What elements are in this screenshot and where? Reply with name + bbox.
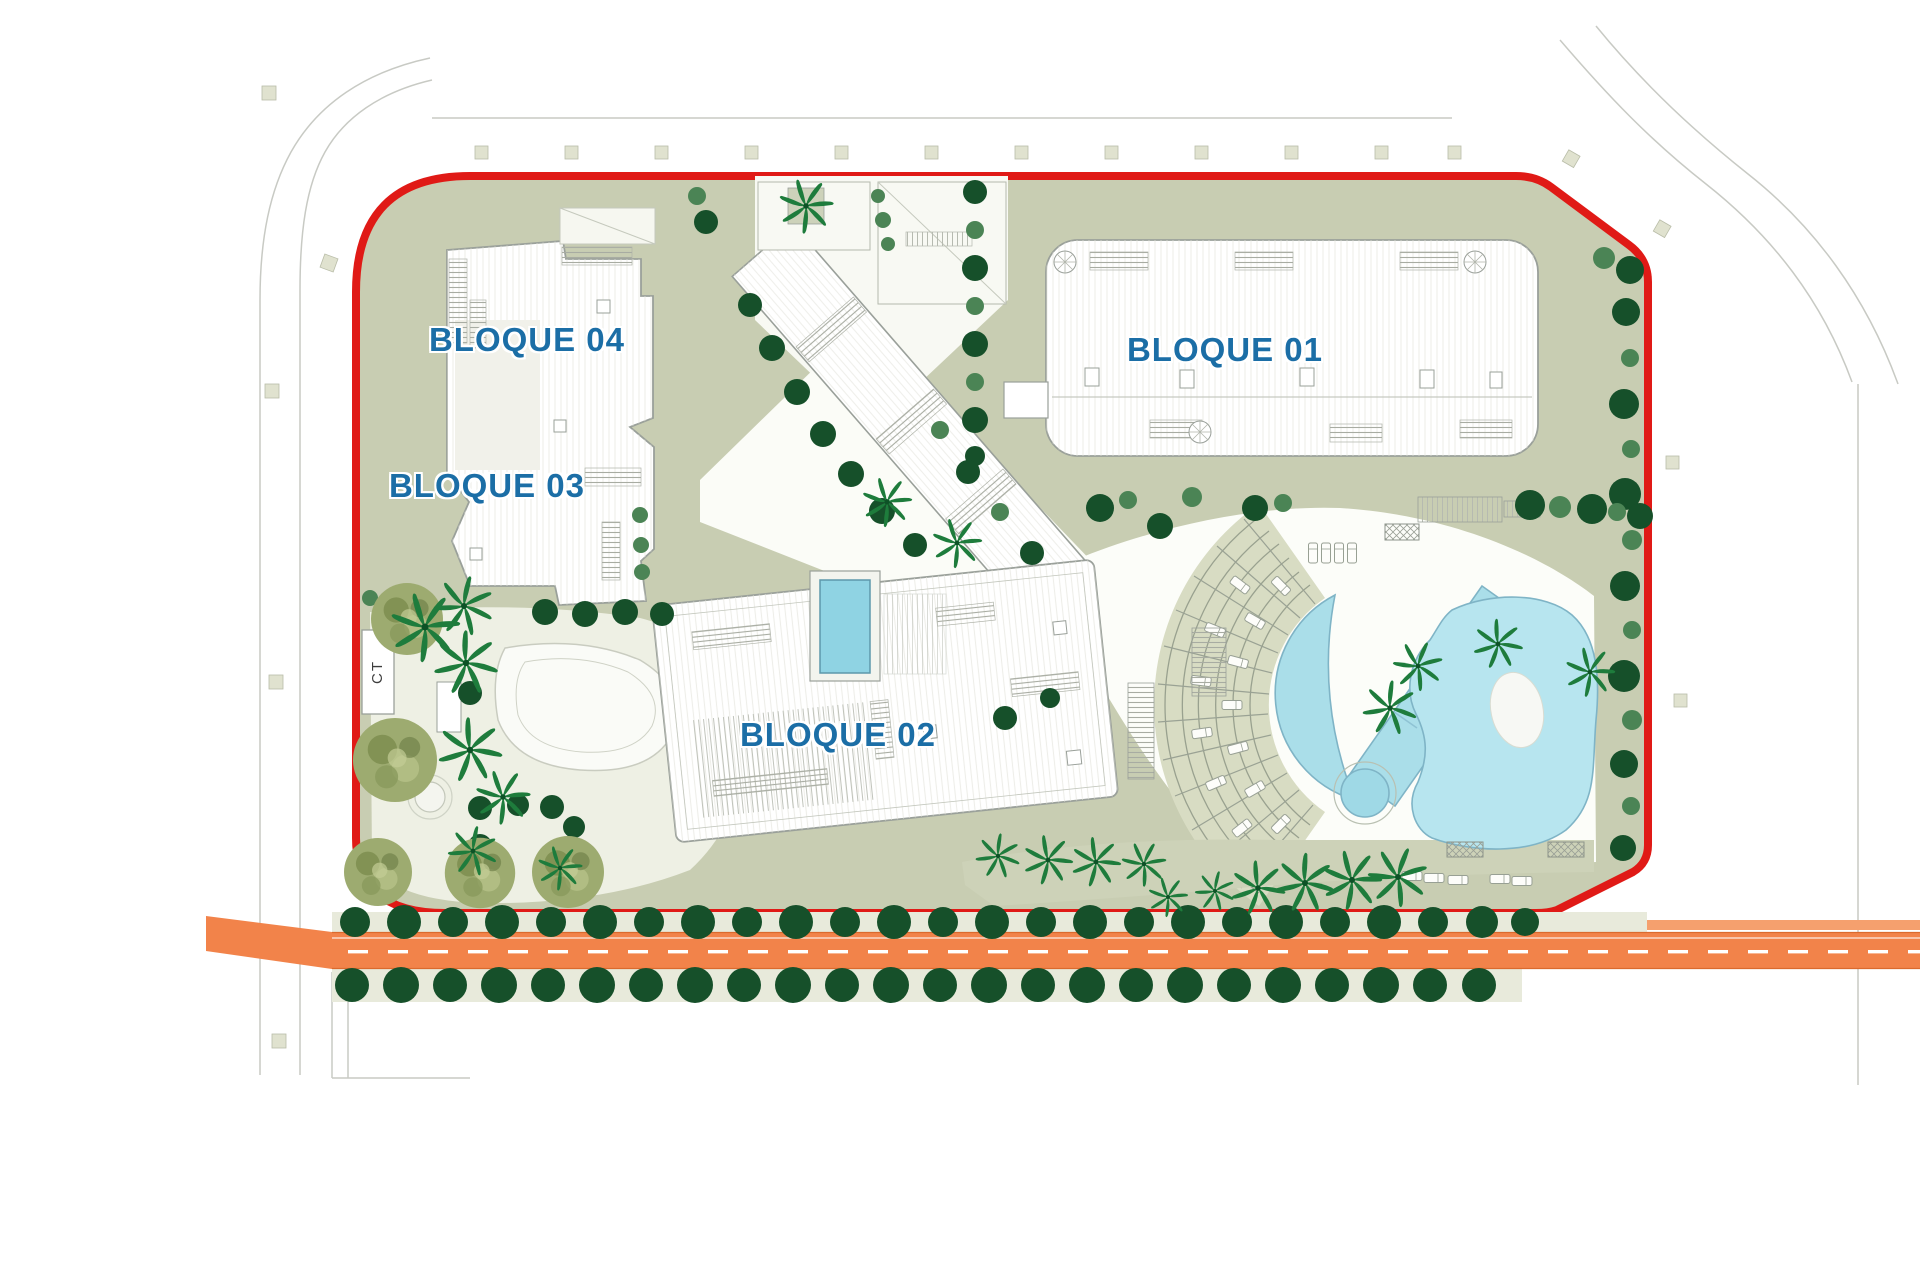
label-bloque-01: BLOQUE 01 — [1090, 331, 1360, 369]
label-bloque-04: BLOQUE 04 — [392, 321, 662, 359]
label-bloque-02: BLOQUE 02 — [703, 716, 973, 754]
masterplan-drawing — [0, 0, 1920, 1280]
rooftop-pool — [820, 580, 870, 673]
label-ct: CT — [368, 630, 388, 714]
spa-pool — [1341, 769, 1389, 817]
site-plan-canvas: BLOQUE 04 BLOQUE 03 BLOQUE 01 BLOQUE 02 … — [0, 0, 1920, 1280]
label-bloque-03: BLOQUE 03 — [352, 467, 622, 505]
building-block-04-03 — [447, 208, 655, 605]
